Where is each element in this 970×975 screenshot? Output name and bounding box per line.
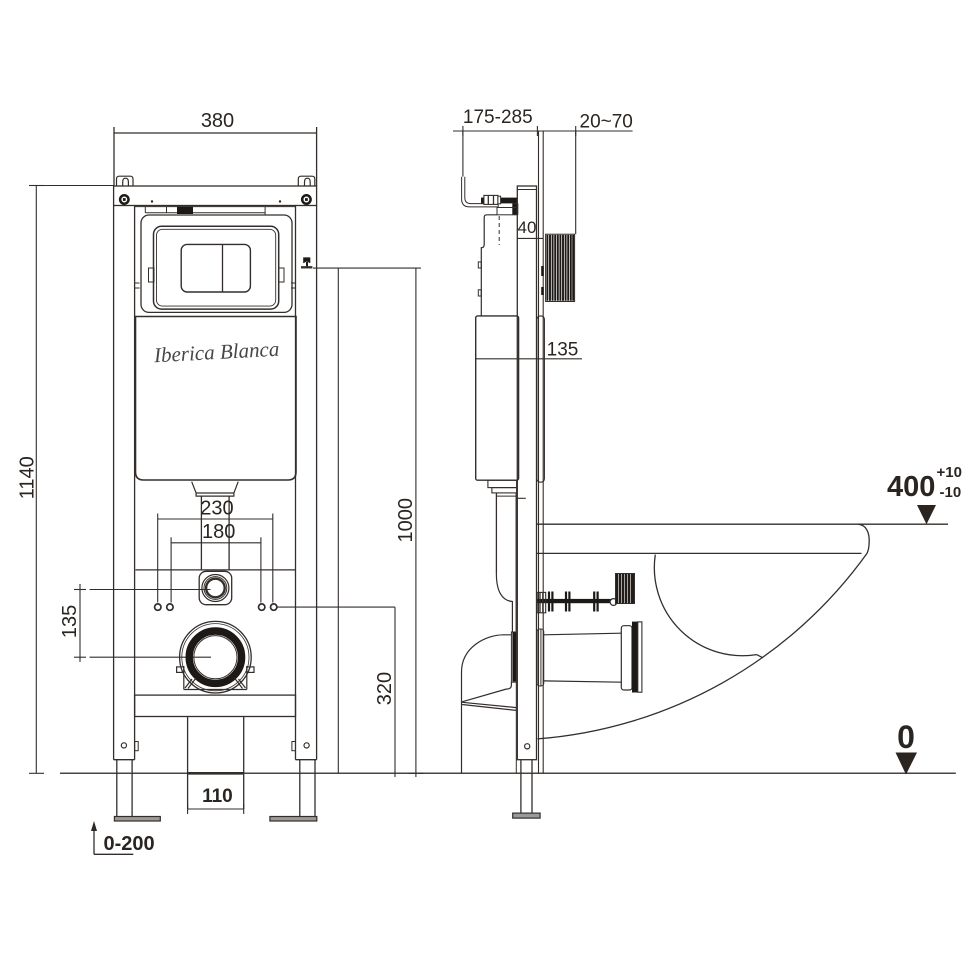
svg-text:+10: +10 — [937, 464, 962, 481]
svg-text:0-200: 0-200 — [104, 833, 155, 855]
svg-text:20~70: 20~70 — [580, 112, 633, 133]
svg-text:400: 400 — [887, 471, 935, 503]
svg-text:320: 320 — [374, 672, 396, 705]
svg-text:Iberica Blanca: Iberica Blanca — [152, 337, 279, 368]
svg-text:135: 135 — [547, 340, 579, 361]
svg-text:1140: 1140 — [16, 456, 38, 499]
svg-text:110: 110 — [202, 786, 233, 807]
svg-text:-10: -10 — [940, 484, 962, 501]
svg-text:40: 40 — [518, 218, 537, 237]
svg-text:180: 180 — [202, 521, 235, 543]
svg-text:175-285: 175-285 — [463, 107, 533, 128]
svg-text:380: 380 — [201, 110, 234, 132]
svg-text:1000: 1000 — [395, 498, 417, 543]
svg-text:230: 230 — [200, 498, 233, 520]
svg-text:0: 0 — [897, 719, 915, 755]
svg-text:135: 135 — [59, 605, 81, 638]
